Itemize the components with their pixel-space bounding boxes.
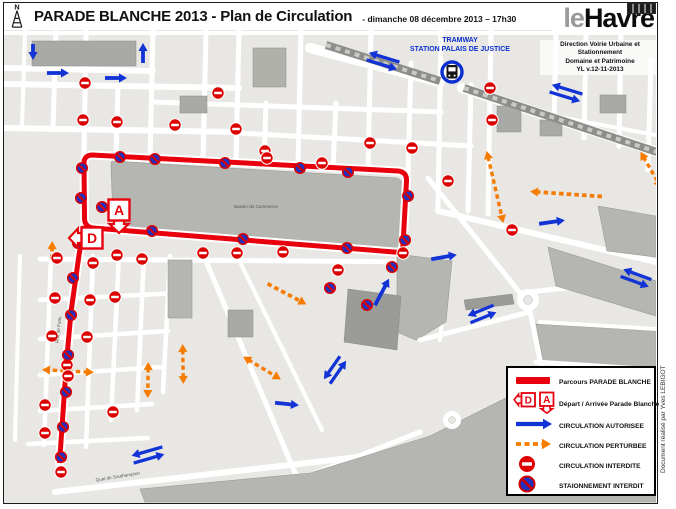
basin-label: Bassin du Commerce	[234, 204, 278, 209]
no-parking-icon	[220, 158, 231, 169]
no-entry-icon	[62, 370, 74, 382]
legend-item-autorisee: CIRCULATION AUTORISEE	[513, 416, 654, 436]
org-line: Direction Voirie Urbaine et Stationnemen…	[540, 41, 660, 58]
no-parking-icon	[403, 191, 414, 202]
no-entry-icon	[212, 87, 224, 99]
no-entry-icon	[277, 246, 289, 258]
disturbed-arrow-swatch	[513, 436, 559, 457]
depart-arrivee-swatch: D A	[513, 390, 559, 419]
north-label: N	[14, 3, 19, 12]
no-entry-icon	[506, 224, 518, 236]
logo-prefix: le	[563, 3, 584, 33]
legend-item-depart-arrivee: D A Départ / Arrivée Parade Blanche	[513, 392, 654, 416]
no-entry-icon	[39, 427, 51, 439]
no-parking-icon	[325, 283, 336, 294]
no-parking-icon	[61, 387, 72, 398]
no-entry-icon	[364, 137, 376, 149]
no-parking-icon	[238, 234, 249, 245]
parade-plan-document: AD TRAMWAY STATION PALAIS DE JUSTICE Bas…	[0, 0, 676, 509]
no-entry-icon	[111, 249, 123, 261]
legend-item-perturbee: CIRCULATION PERTURBEE	[513, 436, 654, 456]
no-entry-icon	[84, 294, 96, 306]
no-entry-icon	[39, 399, 51, 411]
no-parking-icon	[77, 163, 88, 174]
legend-label: CIRCULATION PERTURBEE	[559, 443, 646, 450]
no-entry-icon	[197, 247, 209, 259]
svg-text:D: D	[87, 230, 97, 246]
org-caption: Direction Voirie Urbaine et Stationnemen…	[540, 40, 660, 75]
no-parking-icon	[63, 350, 74, 361]
svg-text:A: A	[114, 202, 124, 218]
no-entry-icon	[111, 116, 123, 128]
header: N PARADE BLANCHE 2013 - Plan de Circulat…	[4, 3, 564, 30]
tramway-label-line1: TRAMWAY	[442, 37, 478, 44]
no-parking-icon	[387, 262, 398, 273]
no-entry-icon	[397, 247, 409, 259]
no-entry-icon	[55, 466, 67, 478]
no-parking-icon	[343, 167, 354, 178]
no-parking-icon	[295, 163, 306, 174]
no-entry-icon	[316, 157, 328, 169]
no-parking-swatch	[513, 475, 559, 498]
authorized-arrow-swatch	[513, 416, 559, 437]
no-parking-icon	[58, 422, 69, 433]
no-parking-icon	[66, 310, 77, 321]
no-parking-icon	[342, 243, 353, 254]
flag-icon	[627, 3, 656, 14]
no-parking-icon	[97, 202, 108, 213]
tram-station-icon	[442, 62, 462, 82]
legend-label: CIRCULATION AUTORISEE	[559, 423, 644, 430]
map-legend: Parcours PARADE BLANCHE D A Départ / Arr…	[506, 366, 656, 496]
svg-text:A: A	[543, 394, 550, 405]
no-entry-icon	[484, 82, 496, 94]
no-parking-icon	[115, 152, 126, 163]
legend-label: Parcours PARADE BLANCHE	[559, 379, 651, 386]
legend-item-interdite: CIRCULATION INTERDITE	[513, 456, 654, 476]
legend-label: CIRCULATION INTERDITE	[559, 463, 641, 470]
no-entry-icon	[230, 123, 242, 135]
no-entry-icon	[77, 114, 89, 126]
svg-text:D: D	[525, 395, 532, 406]
no-entry-icon	[442, 175, 454, 187]
legend-label: Départ / Arrivée Parade Blanche	[559, 401, 659, 408]
no-parking-icon	[362, 300, 373, 311]
no-entry-icon	[136, 253, 148, 265]
no-parking-icon	[76, 193, 87, 204]
no-entry-icon	[332, 264, 344, 276]
no-parking-icon	[400, 235, 411, 246]
no-entry-icon	[261, 152, 273, 164]
no-parking-icon	[68, 273, 79, 284]
no-entry-icon	[87, 257, 99, 269]
no-entry-icon	[49, 292, 61, 304]
no-entry-icon	[486, 114, 498, 126]
no-entry-icon	[231, 247, 243, 259]
org-line: Domaine et Patrimoine	[540, 58, 660, 66]
page-subtitle: - dimanche 08 décembre 2013 – 17h30	[362, 9, 516, 24]
credit-note: Document réalisé par Yves LEBIGOT	[660, 365, 667, 473]
no-parking-icon	[56, 452, 67, 463]
no-entry-icon	[79, 77, 91, 89]
org-line: YL v.12-11-2013	[540, 66, 660, 74]
tramway-label-line2: STATION PALAIS DE JUSTICE	[410, 46, 510, 53]
no-entry-icon	[169, 119, 181, 131]
no-entry-icon	[51, 252, 63, 264]
no-entry-icon	[406, 142, 418, 154]
no-parking-icon	[147, 226, 158, 237]
no-entry-icon	[81, 331, 93, 343]
no-entry-icon	[109, 291, 121, 303]
legend-label: STAIONNEMENT INTERDIT	[559, 483, 644, 490]
legend-item-stationnement: STAIONNEMENT INTERDIT	[513, 476, 654, 496]
north-arrow-icon: N	[7, 2, 27, 31]
no-entry-icon	[107, 406, 119, 418]
no-parking-icon	[150, 154, 161, 165]
page-title: PARADE BLANCHE 2013 - Plan de Circulatio…	[34, 8, 352, 25]
